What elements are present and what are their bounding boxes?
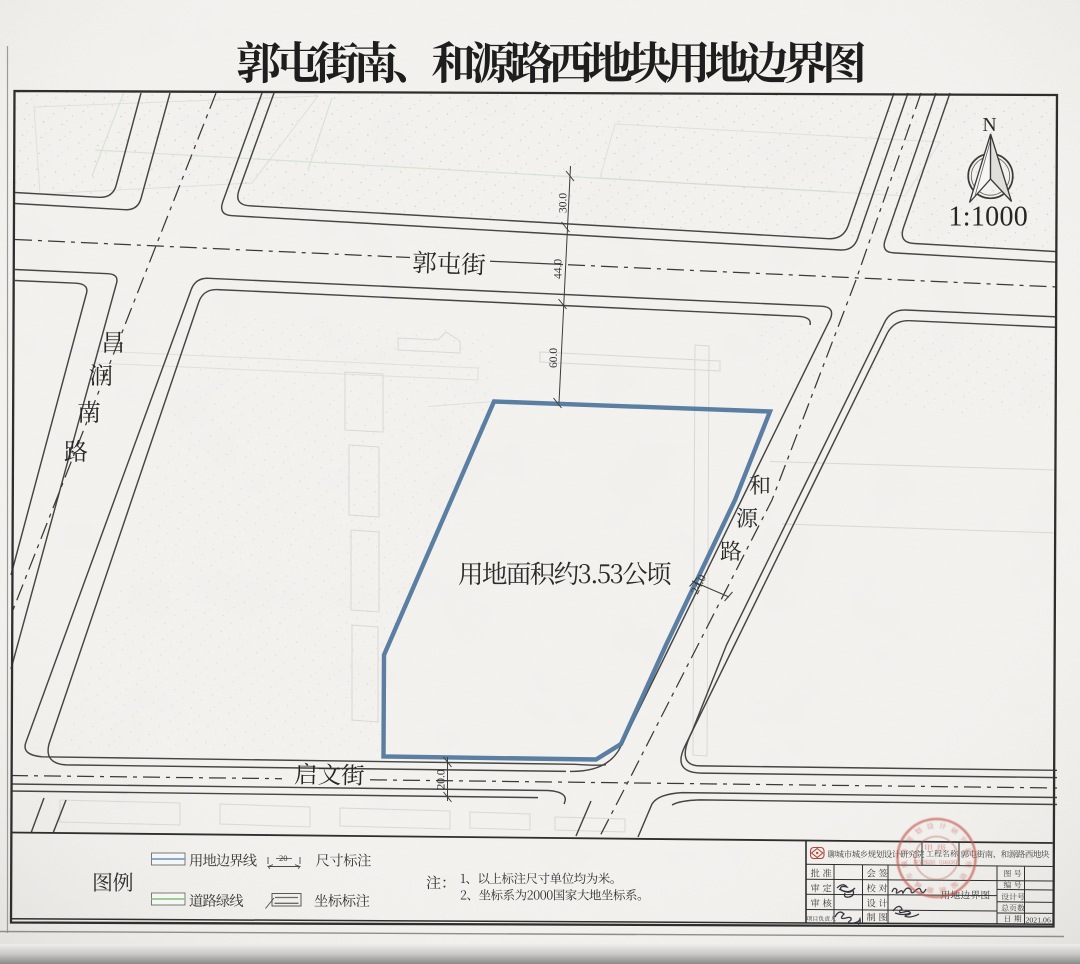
- svg-text:30.0: 30.0: [558, 193, 570, 213]
- svg-text:44.0: 44.0: [553, 259, 565, 279]
- svg-text:20: 20: [279, 853, 288, 863]
- svg-text:60.0: 60.0: [548, 348, 560, 368]
- svg-text:1:1000: 1:1000: [949, 202, 1029, 233]
- svg-text:20.0: 20.0: [436, 769, 448, 789]
- svg-text:N: N: [983, 115, 997, 136]
- svg-text:2021.06: 2021.06: [1026, 915, 1051, 924]
